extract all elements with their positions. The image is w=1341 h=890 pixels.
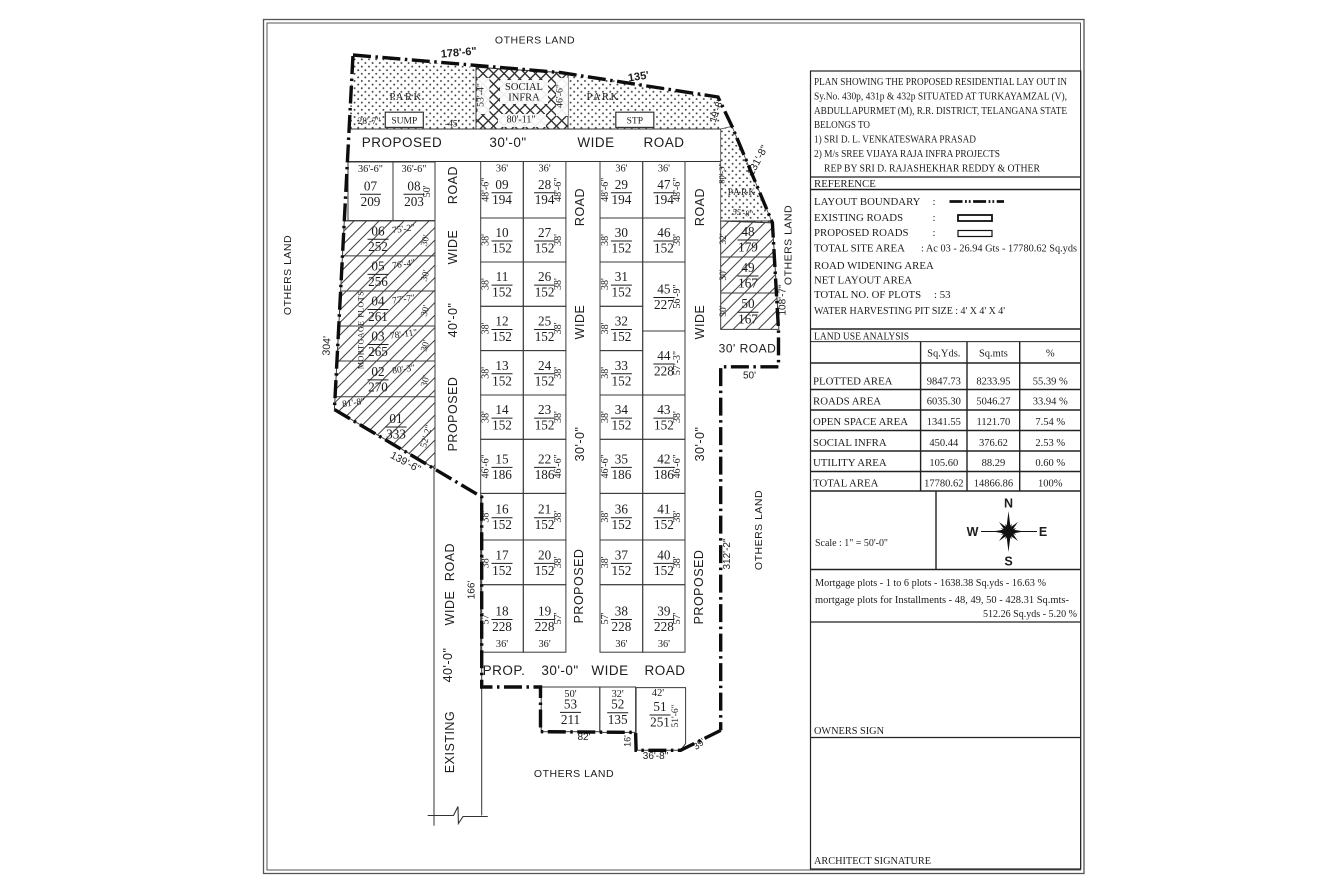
svg-text:38': 38' [600, 511, 611, 523]
svg-text:LAYOUT BOUNDARY: LAYOUT BOUNDARY [814, 196, 921, 208]
svg-text:152: 152 [535, 241, 555, 256]
svg-text:33.94 %: 33.94 % [1033, 397, 1068, 408]
svg-text:38': 38' [553, 322, 564, 334]
svg-text:10: 10 [495, 225, 509, 240]
svg-text:512.26 Sq.yds - 5.20 %: 512.26 Sq.yds - 5.20 % [983, 608, 1077, 620]
svg-text:36': 36' [496, 164, 508, 175]
svg-text:31: 31 [615, 269, 628, 284]
svg-text:45: 45 [657, 282, 671, 297]
svg-text:01: 01 [389, 411, 402, 426]
svg-text:152: 152 [654, 418, 674, 433]
svg-text:152: 152 [654, 563, 674, 578]
svg-text::: : [933, 227, 936, 239]
svg-text:E: E [1039, 525, 1047, 539]
svg-text:ROAD: ROAD [446, 166, 460, 204]
svg-text:152: 152 [492, 285, 512, 300]
svg-text:02: 02 [371, 364, 384, 379]
svg-text:36'-8": 36'-8" [643, 751, 669, 762]
svg-text:-45': -45' [445, 120, 460, 130]
svg-text:38': 38' [481, 367, 492, 379]
svg-text:38': 38' [600, 322, 611, 334]
svg-text:2) M/s SREE VIJAYA RAJA INFRA: 2) M/s SREE VIJAYA RAJA INFRA PROJECTS [814, 148, 1000, 160]
svg-text:REFERENCE: REFERENCE [814, 178, 876, 190]
svg-text:TOTAL SITE AREA: TOTAL SITE AREA [814, 243, 905, 255]
svg-text:07: 07 [364, 178, 378, 193]
svg-text:LAND USE ANALYSIS: LAND USE ANALYSIS [814, 331, 909, 343]
svg-text:SOCIAL INFRA: SOCIAL INFRA [813, 437, 887, 449]
svg-text:38': 38' [672, 411, 683, 423]
svg-text:WIDE: WIDE [573, 305, 587, 340]
svg-text:57'-3": 57'-3" [672, 351, 683, 375]
svg-text:57': 57' [553, 612, 564, 624]
svg-text:36': 36' [615, 164, 627, 175]
svg-text:TOTAL NO. OF PLOTS: TOTAL NO. OF PLOTS [814, 289, 921, 301]
svg-text:38': 38' [672, 234, 683, 246]
svg-text:PROPOSED: PROPOSED [572, 549, 586, 624]
svg-text:PROPOSED: PROPOSED [692, 550, 706, 625]
svg-text:36': 36' [615, 639, 627, 650]
svg-text:48'-6": 48'-6" [672, 178, 683, 202]
svg-text:ROAD: ROAD [644, 663, 685, 678]
svg-text:48: 48 [741, 224, 755, 239]
svg-text:%: % [1046, 349, 1055, 360]
svg-text:34: 34 [615, 402, 629, 417]
svg-text:38': 38' [481, 278, 492, 290]
svg-text:38': 38' [600, 411, 611, 423]
svg-text:Sq.mts: Sq.mts [979, 349, 1008, 360]
svg-text:152: 152 [612, 517, 632, 532]
svg-text:OTHERS LAND: OTHERS LAND [282, 235, 294, 315]
svg-text:41: 41 [657, 502, 670, 517]
svg-text:17: 17 [495, 547, 509, 562]
svg-text:25: 25 [538, 314, 552, 329]
svg-text:152: 152 [535, 418, 555, 433]
svg-text:333: 333 [386, 427, 406, 442]
svg-text:PARK: PARK [728, 188, 756, 198]
svg-text:48'-6": 48'-6" [553, 178, 564, 202]
svg-text:38': 38' [672, 556, 683, 568]
svg-text:W: W [967, 525, 979, 539]
svg-text:38': 38' [553, 411, 564, 423]
svg-text:20: 20 [538, 547, 552, 562]
svg-text:228: 228 [535, 619, 555, 634]
svg-text:105.60: 105.60 [929, 458, 958, 469]
svg-text:167: 167 [738, 276, 758, 291]
svg-text:16': 16' [623, 735, 633, 747]
svg-text:304': 304' [321, 336, 334, 356]
svg-text:28'-7": 28'-7" [357, 117, 380, 127]
svg-text:mortgage plots for Installment: mortgage plots for Installments - 48, 49… [815, 594, 1069, 606]
svg-text:24: 24 [538, 358, 552, 373]
svg-text:SUMP: SUMP [391, 117, 417, 127]
svg-text:38': 38' [481, 411, 492, 423]
svg-text:51'-6": 51'-6" [671, 704, 681, 727]
svg-text:14: 14 [495, 402, 509, 417]
svg-text:PROPOSED ROADS: PROPOSED ROADS [814, 227, 909, 239]
svg-text:32: 32 [615, 314, 628, 329]
svg-text:50': 50' [743, 371, 756, 382]
svg-text:152: 152 [612, 285, 632, 300]
svg-text:48'-6": 48'-6" [600, 178, 611, 202]
svg-text:ARCHITECT SIGNATURE: ARCHITECT SIGNATURE [814, 855, 931, 867]
svg-text:80'-3": 80'-3" [717, 163, 727, 184]
svg-text:36'-6": 36'-6" [402, 164, 427, 175]
svg-text:Sq.Yds.: Sq.Yds. [927, 349, 960, 360]
svg-text::: : [933, 212, 936, 224]
svg-text:PROPOSED: PROPOSED [362, 135, 443, 150]
svg-text:194: 194 [612, 192, 632, 207]
svg-text:Scale : 1" = 50'-0": Scale : 1" = 50'-0" [815, 537, 888, 549]
svg-text:PLAN SHOWING THE PROPOSED RESI: PLAN SHOWING THE PROPOSED RESIDENTIAL LA… [814, 76, 1067, 88]
svg-text:50': 50' [564, 689, 576, 700]
svg-text:55.39 %: 55.39 % [1033, 377, 1068, 388]
svg-text:152: 152 [492, 563, 512, 578]
svg-text:30': 30' [719, 269, 729, 281]
svg-text:36': 36' [658, 164, 670, 175]
svg-text:152: 152 [612, 329, 632, 344]
svg-text:38': 38' [481, 234, 492, 246]
svg-text:46'-6": 46'-6" [555, 84, 566, 108]
svg-text:152: 152 [535, 563, 555, 578]
svg-text:Mortgage plots - 1 to 6 plots: Mortgage plots - 1 to 6 plots - 1638.38 … [815, 577, 1046, 589]
svg-text:261: 261 [368, 309, 388, 324]
svg-text:186: 186 [492, 467, 512, 482]
svg-text:ROAD: ROAD [573, 188, 587, 226]
svg-text:0.60 %: 0.60 % [1035, 458, 1065, 469]
svg-text:BELONGS TO: BELONGS TO [814, 119, 870, 131]
svg-text:ROAD: ROAD [693, 188, 707, 226]
svg-text:09: 09 [495, 177, 509, 192]
svg-text:NET LAYOUT AREA: NET LAYOUT AREA [814, 275, 912, 287]
svg-text:: Ac 03 - 26.94 Gts - 17780.62: : Ac 03 - 26.94 Gts - 17780.62 Sq.yds [921, 244, 1077, 255]
svg-text:40'-0": 40'-0" [446, 303, 460, 338]
svg-text:42: 42 [657, 451, 670, 466]
svg-text:ABDULLAPURMET (M), R.R. DISTRI: ABDULLAPURMET (M), R.R. DISTRICT, TELANG… [814, 105, 1067, 117]
svg-text:: 53: : 53 [934, 289, 951, 301]
svg-text:46'-6": 46'-6" [481, 454, 492, 478]
svg-text:30'-0": 30'-0" [489, 135, 526, 150]
svg-text:450.44: 450.44 [929, 438, 959, 449]
svg-text:135: 135 [608, 712, 628, 727]
svg-text:38': 38' [600, 278, 611, 290]
svg-text:30'-0": 30'-0" [541, 663, 578, 678]
svg-text:43: 43 [657, 402, 671, 417]
svg-text:30'-0": 30'-0" [693, 427, 707, 462]
svg-text:16: 16 [495, 502, 509, 517]
svg-text:57': 57' [600, 612, 611, 624]
svg-text::: : [933, 196, 936, 208]
svg-text:04: 04 [371, 294, 385, 309]
svg-text:23: 23 [538, 402, 552, 417]
svg-text:32': 32' [719, 233, 729, 245]
svg-text:WIDE: WIDE [693, 305, 707, 340]
svg-text:152: 152 [492, 241, 512, 256]
svg-text:51: 51 [653, 699, 666, 714]
svg-text:152: 152 [492, 418, 512, 433]
svg-text:EXISTING: EXISTING [443, 711, 457, 773]
svg-text:29: 29 [615, 177, 629, 192]
svg-text:88.29: 88.29 [982, 458, 1006, 469]
svg-text:PROPOSED: PROPOSED [446, 377, 460, 452]
svg-text:S: S [1004, 555, 1012, 569]
svg-text:50': 50' [422, 185, 433, 197]
svg-text:N: N [1004, 497, 1013, 511]
svg-text:15: 15 [495, 451, 509, 466]
svg-text:46'-6": 46'-6" [672, 454, 683, 478]
svg-text:36': 36' [539, 639, 551, 650]
svg-text:38': 38' [600, 556, 611, 568]
svg-text:28: 28 [538, 177, 552, 192]
svg-text:38': 38' [553, 234, 564, 246]
svg-text:38': 38' [553, 278, 564, 290]
svg-text:152: 152 [492, 373, 512, 388]
svg-text:376.62: 376.62 [979, 438, 1008, 449]
svg-text:53'-4": 53'-4" [476, 83, 487, 107]
svg-text:270: 270 [368, 379, 388, 394]
svg-text:48'-6": 48'-6" [481, 178, 492, 202]
svg-text:46: 46 [657, 225, 671, 240]
svg-text:17780.62: 17780.62 [924, 479, 963, 490]
svg-text:MORTGAGE PLOTS: MORTGAGE PLOTS [357, 291, 366, 369]
svg-text:REP BY SRI D. RAJASHEKHAR REDD: REP BY SRI D. RAJASHEKHAR REDDY & OTHER [824, 162, 1041, 174]
svg-text:32': 32' [612, 689, 624, 700]
svg-text:39: 39 [657, 604, 671, 619]
svg-text:WIDE: WIDE [577, 135, 614, 150]
svg-text:11: 11 [496, 269, 509, 284]
svg-text:OTHERS LAND: OTHERS LAND [783, 205, 795, 285]
svg-text:167: 167 [738, 312, 758, 327]
svg-text:22: 22 [538, 451, 551, 466]
svg-text:166': 166' [467, 581, 478, 600]
svg-text:38': 38' [553, 556, 564, 568]
svg-text:36': 36' [658, 639, 670, 650]
svg-text:209: 209 [361, 194, 381, 209]
svg-text:2.53 %: 2.53 % [1035, 438, 1065, 449]
svg-text:19: 19 [538, 604, 552, 619]
svg-text:40'-0": 40'-0" [441, 648, 455, 683]
svg-text:42': 42' [652, 688, 664, 699]
svg-text:30' ROAD: 30' ROAD [719, 342, 777, 356]
svg-text:38': 38' [600, 234, 611, 246]
svg-text:152: 152 [612, 373, 632, 388]
svg-text:152: 152 [654, 517, 674, 532]
svg-text:152: 152 [535, 329, 555, 344]
svg-text:05: 05 [371, 258, 385, 273]
svg-text:STP: STP [627, 117, 643, 127]
svg-text:PROP.: PROP. [483, 663, 526, 678]
svg-text:EXISTING ROADS: EXISTING ROADS [814, 212, 903, 224]
svg-text:38': 38' [553, 367, 564, 379]
svg-text:OTHERS LAND: OTHERS LAND [534, 768, 614, 780]
svg-text:35: 35 [615, 451, 629, 466]
svg-text:SOCIAL: SOCIAL [505, 82, 543, 93]
svg-text:228: 228 [612, 619, 632, 634]
svg-text:152: 152 [535, 373, 555, 388]
svg-text:7.54 %: 7.54 % [1035, 417, 1065, 428]
svg-text:ROADS AREA: ROADS AREA [813, 396, 881, 408]
svg-text:179: 179 [738, 240, 758, 255]
svg-text:OPEN SPACE AREA: OPEN SPACE AREA [813, 416, 908, 428]
svg-text:PARK: PARK [586, 92, 619, 103]
svg-text:152: 152 [492, 517, 512, 532]
svg-text:30: 30 [615, 225, 629, 240]
svg-text:265: 265 [368, 344, 388, 359]
svg-text:50: 50 [741, 296, 755, 311]
svg-text:36': 36' [539, 164, 551, 175]
svg-text:228: 228 [492, 619, 512, 634]
svg-text:36: 36 [615, 502, 629, 517]
svg-text:Sy.No. 430p, 431p & 432p SITUA: Sy.No. 430p, 431p & 432p SITUATED AT TUR… [814, 90, 1067, 102]
svg-text:ROAD WIDENING AREA: ROAD WIDENING AREA [814, 260, 934, 272]
svg-text:12: 12 [495, 314, 508, 329]
svg-text:21: 21 [538, 502, 551, 517]
svg-text:186: 186 [612, 467, 632, 482]
svg-text:57': 57' [672, 612, 683, 624]
svg-text:ROAD: ROAD [443, 543, 457, 581]
svg-text:152: 152 [612, 418, 632, 433]
svg-text:38': 38' [600, 367, 611, 379]
svg-text:26: 26 [538, 269, 552, 284]
svg-text:38': 38' [672, 511, 683, 523]
svg-text:TOTAL AREA: TOTAL AREA [813, 478, 879, 490]
svg-text:18: 18 [495, 604, 509, 619]
svg-text:47: 47 [657, 177, 671, 192]
svg-text:312'-2": 312'-2" [722, 538, 733, 569]
svg-text:WIDE: WIDE [443, 591, 457, 626]
svg-text:46'-6": 46'-6" [553, 454, 564, 478]
svg-text:33: 33 [615, 358, 629, 373]
svg-text:37: 37 [615, 547, 629, 562]
svg-text:49: 49 [741, 260, 755, 275]
svg-text:PARK: PARK [389, 92, 422, 103]
svg-text:44: 44 [657, 348, 671, 363]
svg-text:30': 30' [719, 305, 729, 317]
svg-text:80'-11": 80'-11" [507, 115, 536, 126]
svg-text:WIDE: WIDE [591, 663, 628, 678]
svg-text:UTILITY AREA: UTILITY AREA [813, 457, 887, 469]
svg-text:INFRA: INFRA [508, 93, 540, 104]
svg-text:100%: 100% [1038, 479, 1063, 490]
svg-text:256: 256 [368, 274, 388, 289]
svg-text:WIDE: WIDE [446, 230, 460, 265]
svg-text:186: 186 [535, 467, 555, 482]
svg-text:6035.30: 6035.30 [927, 397, 961, 408]
svg-text:252: 252 [368, 239, 388, 254]
svg-text:152: 152 [654, 241, 674, 256]
svg-text:PLOTTED AREA: PLOTTED AREA [813, 376, 893, 388]
svg-text:152: 152 [492, 329, 512, 344]
svg-text:5046.27: 5046.27 [976, 397, 1010, 408]
svg-text:14866.86: 14866.86 [974, 479, 1013, 490]
svg-text:36': 36' [496, 639, 508, 650]
svg-text:OTHERS LAND: OTHERS LAND [753, 490, 765, 570]
svg-text:56'-9": 56'-9" [672, 284, 683, 308]
svg-text:152: 152 [535, 517, 555, 532]
svg-text:OTHERS LAND: OTHERS LAND [495, 35, 575, 47]
svg-text:36'-6": 36'-6" [358, 164, 383, 175]
svg-text:211: 211 [561, 712, 580, 727]
svg-text:08: 08 [407, 178, 421, 193]
svg-text:46'-6": 46'-6" [600, 454, 611, 478]
svg-text:13: 13 [495, 358, 509, 373]
svg-text:9847.73: 9847.73 [927, 377, 961, 388]
svg-text:194: 194 [535, 192, 555, 207]
svg-text:38: 38 [615, 604, 629, 619]
svg-text:ROAD: ROAD [643, 135, 684, 150]
svg-text:108'-7": 108'-7" [778, 284, 789, 315]
svg-text:1) SRI D. L. VENKATESWARA PRAS: 1) SRI D. L. VENKATESWARA PRASAD [814, 134, 976, 146]
svg-text:27: 27 [538, 225, 552, 240]
svg-text:38': 38' [553, 511, 564, 523]
svg-text:06: 06 [371, 223, 385, 238]
svg-text:OWNERS SIGN: OWNERS SIGN [814, 725, 884, 737]
svg-text:194: 194 [492, 192, 512, 207]
svg-text:WATER HARVESTING PIT SIZE : 4: WATER HARVESTING PIT SIZE : 4' X 4' X 4' [814, 305, 1005, 317]
svg-text:1121.70: 1121.70 [977, 417, 1011, 428]
svg-text:40: 40 [657, 547, 671, 562]
svg-text:251: 251 [650, 715, 670, 730]
svg-text:152: 152 [535, 285, 555, 300]
svg-text:1341.55: 1341.55 [927, 417, 961, 428]
svg-text:38': 38' [481, 322, 492, 334]
svg-text:30'-0": 30'-0" [573, 427, 587, 462]
svg-text:152: 152 [612, 241, 632, 256]
svg-text:8233.95: 8233.95 [976, 377, 1010, 388]
svg-text:152: 152 [612, 563, 632, 578]
svg-text:03: 03 [371, 329, 385, 344]
